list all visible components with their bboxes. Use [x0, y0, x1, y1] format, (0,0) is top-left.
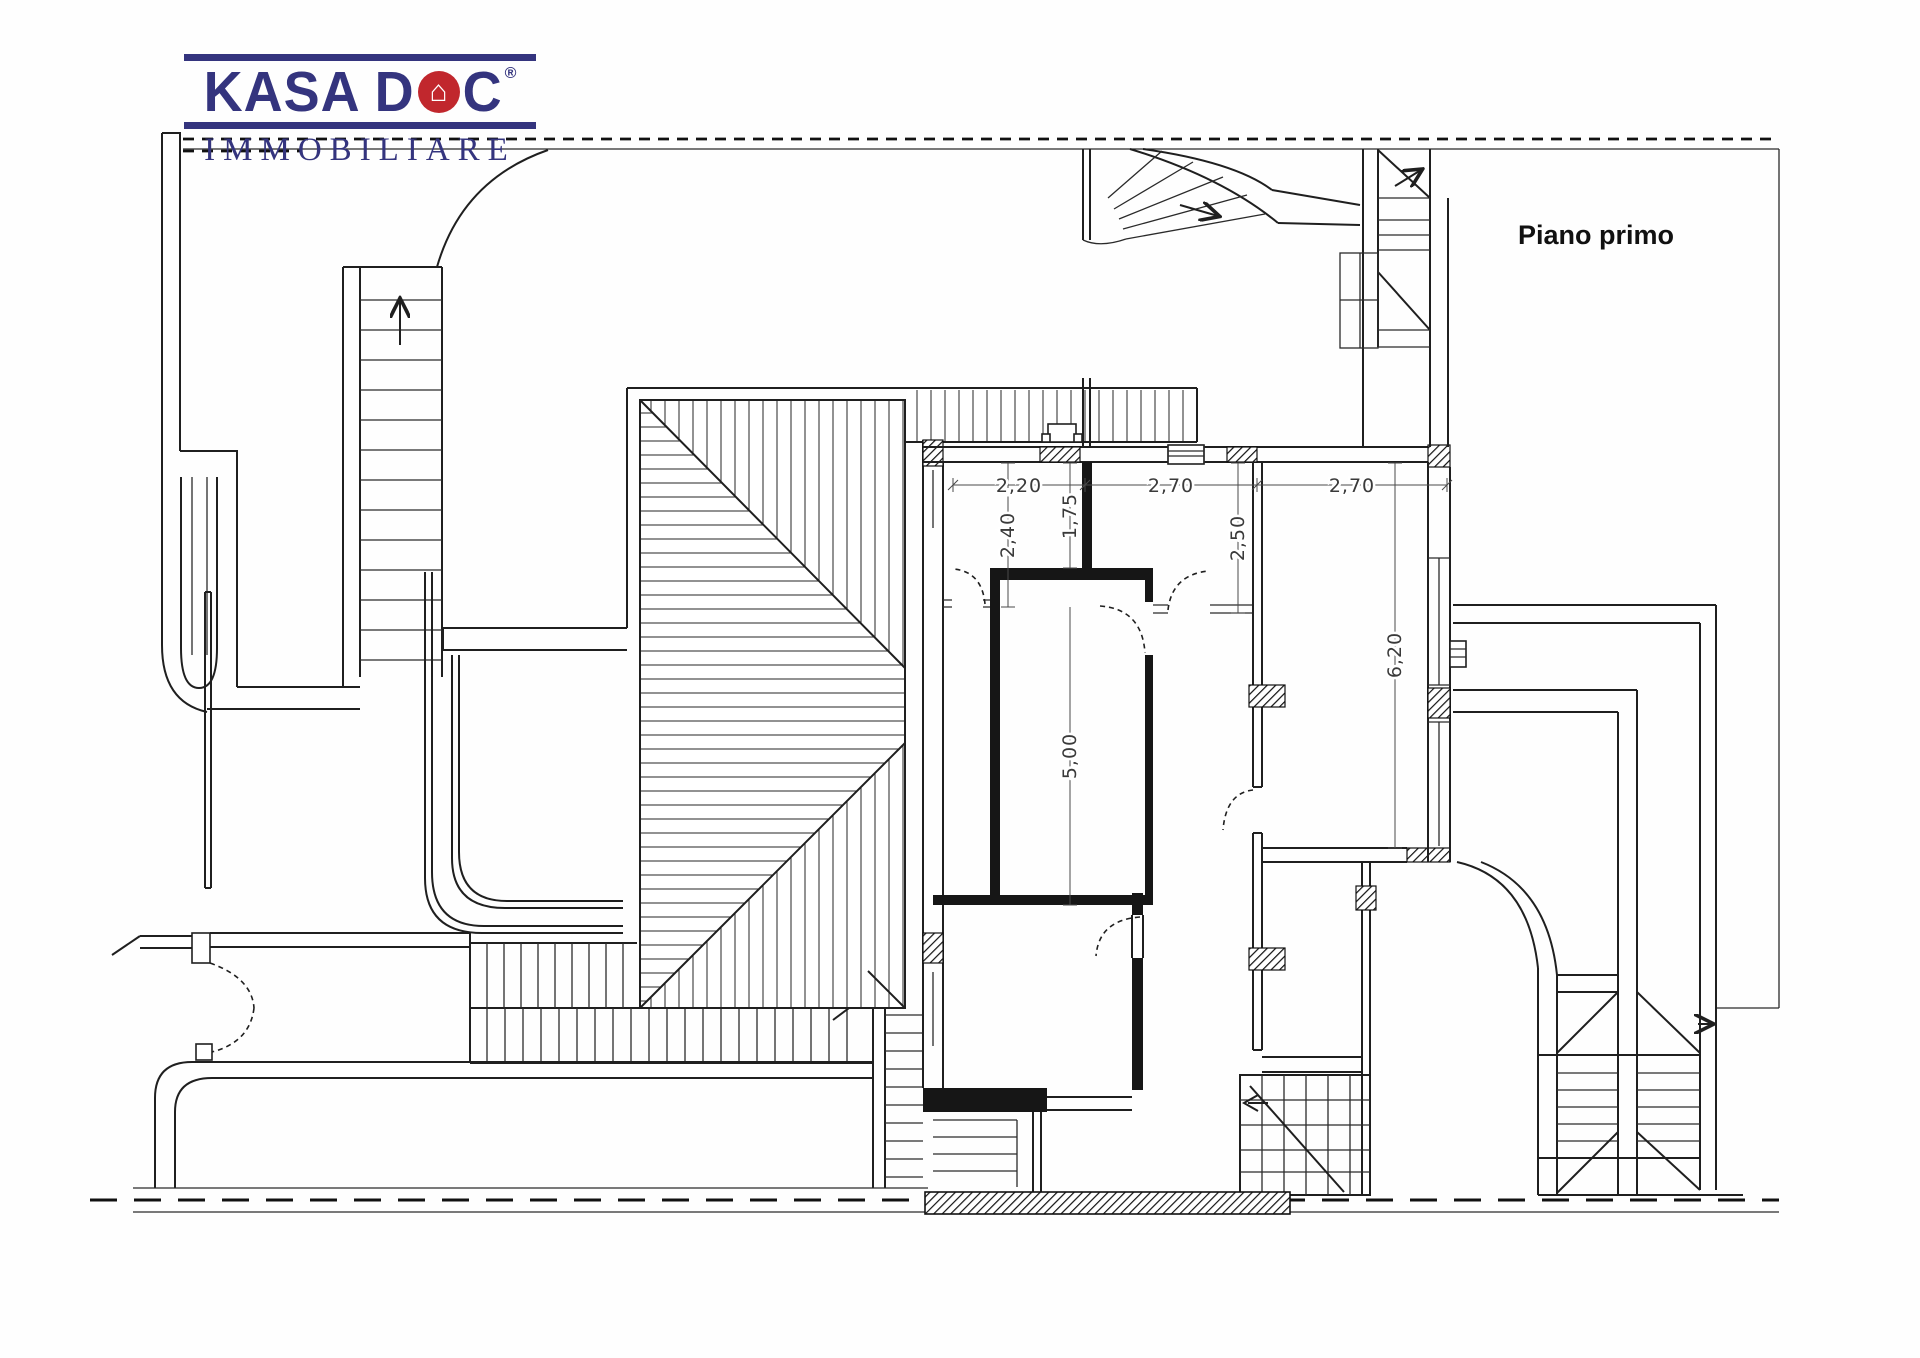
small-stair-grid: [1240, 1075, 1370, 1195]
logo-brand-text-right: C: [463, 64, 503, 121]
floor-plan-drawing: 2,20 2,70 2,70 2,40 1,75 2,50 6,20 5,00: [0, 0, 1920, 1358]
logo-brand-text-left: KASA D: [204, 64, 415, 121]
logo-house-o-icon: ⌂: [418, 71, 460, 113]
stair-left: [343, 267, 442, 687]
dimension-label: 2,70: [1329, 475, 1375, 497]
hatched-wall-strip: [925, 1192, 1290, 1214]
dimension-label: 1,75: [1059, 493, 1081, 539]
dimension-lines: 2,20 2,70 2,70 2,40 1,75 2,50 6,20 5,00: [948, 463, 1452, 905]
logo-brand-row: KASA D ⌂ C ®: [182, 61, 538, 122]
floor-plan-page: 2,20 2,70 2,70 2,40 1,75 2,50 6,20 5,00: [0, 0, 1920, 1358]
property-boundary-top: [183, 139, 1779, 1008]
dimension-label: 2,70: [1148, 475, 1194, 497]
dimension-label: 6,20: [1384, 632, 1406, 678]
agency-logo: KASA D ⌂ C ® IMMOBILIARE: [182, 54, 538, 167]
site-wall-left: [162, 133, 360, 888]
dimension-label: 5,00: [1059, 733, 1081, 779]
dimension-label: 2,50: [1227, 515, 1249, 561]
logo-subtitle: IMMOBILIARE: [182, 129, 538, 167]
double-door-bottom-left: [210, 963, 254, 1052]
registered-trademark-icon: ®: [505, 66, 517, 82]
dimension-label: 2,20: [996, 475, 1042, 497]
terrace-mid-left: [425, 572, 627, 933]
floor-label: Piano primo: [1518, 220, 1674, 251]
straight-stair-top-right: [1340, 149, 1448, 447]
roof-hip: [627, 388, 1197, 1008]
dimension-label: 2,40: [997, 512, 1019, 558]
